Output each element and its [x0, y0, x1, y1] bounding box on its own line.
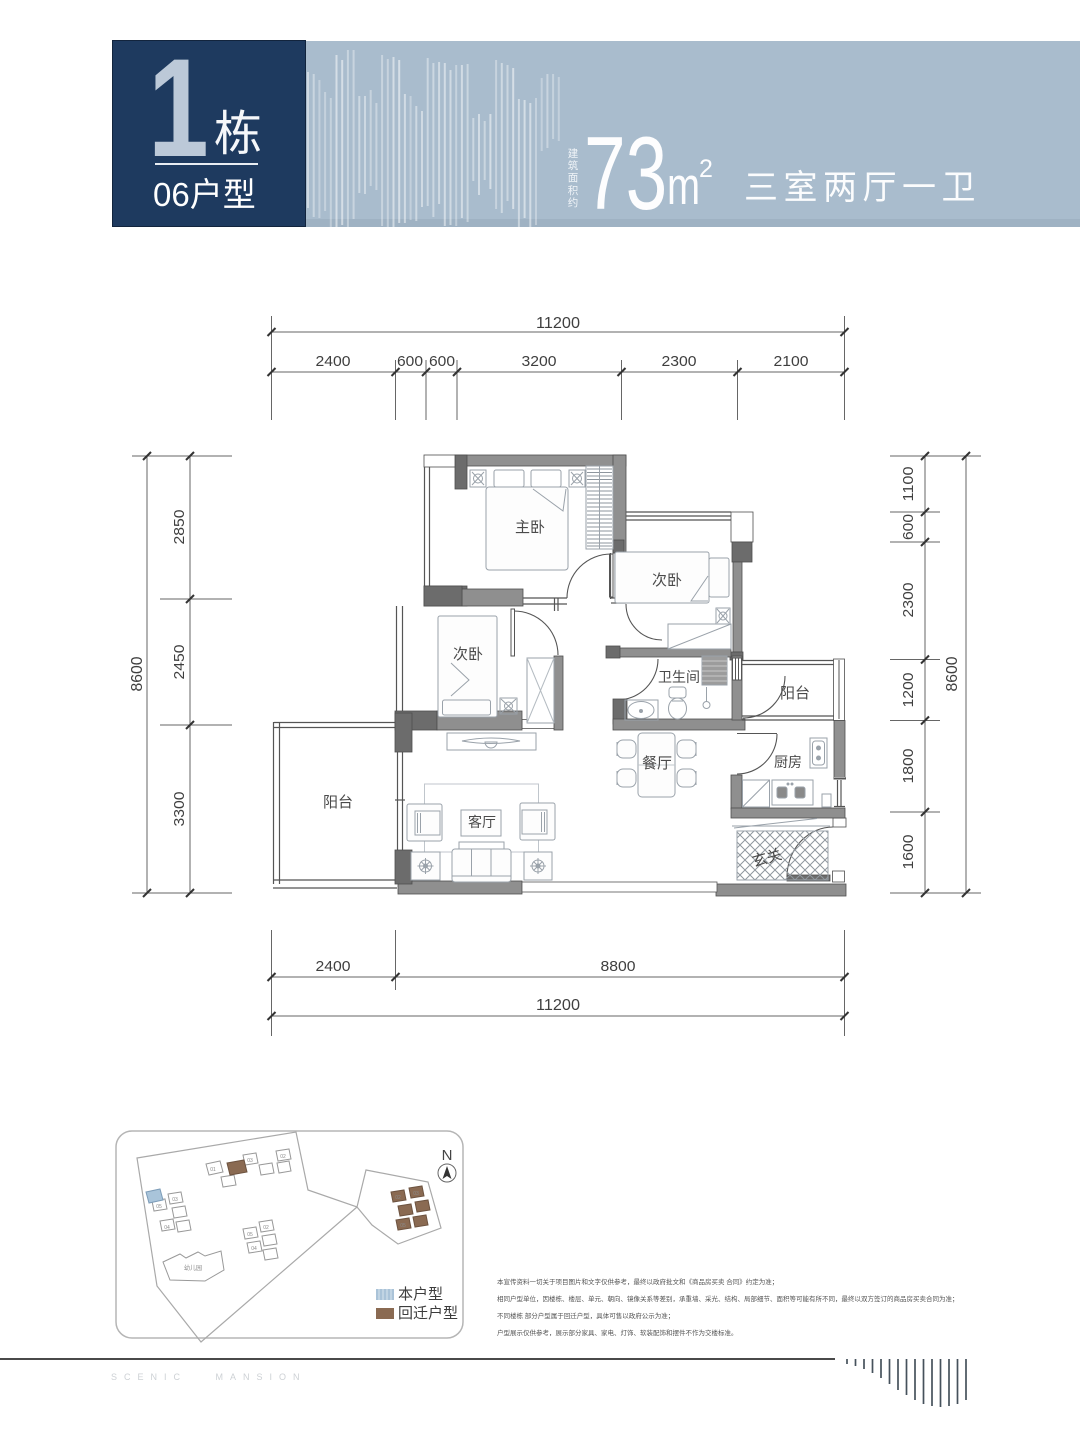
svg-text:02: 02 [395, 1195, 401, 1201]
svg-text:3200: 3200 [522, 353, 557, 370]
svg-text:05: 05 [156, 1204, 162, 1210]
svg-text:02: 02 [263, 1225, 269, 1231]
svg-text:次卧: 次卧 [453, 646, 483, 663]
svg-text:04: 04 [164, 1225, 170, 1231]
svg-text:04: 04 [251, 1246, 257, 1252]
svg-text:阳台: 阳台 [780, 685, 810, 702]
svg-text:本户型: 本户型 [398, 1286, 443, 1303]
svg-text:客厅: 客厅 [468, 814, 496, 830]
svg-text:600: 600 [429, 353, 455, 370]
svg-text:1100: 1100 [900, 467, 917, 502]
svg-text:次卧: 次卧 [652, 572, 682, 589]
svg-text:餐厅: 餐厅 [642, 755, 672, 772]
svg-text:02: 02 [280, 1154, 286, 1160]
svg-text:2400: 2400 [316, 353, 351, 370]
svg-text:2850: 2850 [171, 510, 188, 545]
svg-text:阳台: 阳台 [323, 794, 353, 811]
svg-text:2100: 2100 [774, 353, 809, 370]
svg-text:回迁户型: 回迁户型 [398, 1305, 458, 1322]
svg-text:1800: 1800 [900, 749, 917, 784]
svg-text:卫生间: 卫生间 [658, 669, 700, 685]
svg-text:03: 03 [413, 1191, 419, 1197]
svg-text:1600: 1600 [900, 835, 917, 870]
svg-text:2300: 2300 [900, 583, 917, 618]
svg-text:3300: 3300 [171, 792, 188, 827]
svg-text:03: 03 [247, 1158, 253, 1164]
svg-text:幼儿园: 幼儿园 [184, 1264, 202, 1272]
svg-text:2400: 2400 [316, 958, 351, 975]
svg-text:05: 05 [247, 1232, 253, 1238]
svg-text:8600: 8600 [944, 656, 961, 691]
svg-text:600: 600 [900, 514, 917, 540]
svg-text:03: 03 [172, 1197, 178, 1203]
svg-text:2450: 2450 [171, 645, 188, 680]
svg-text:11200: 11200 [536, 315, 580, 332]
svg-text:05: 05 [400, 1223, 406, 1229]
svg-text:厨房: 厨房 [774, 754, 802, 770]
svg-text:01: 01 [210, 1167, 216, 1173]
svg-text:8600: 8600 [129, 656, 146, 691]
svg-text:1200: 1200 [900, 673, 917, 708]
svg-text:2300: 2300 [662, 353, 697, 370]
svg-text:600: 600 [397, 353, 423, 370]
svg-text:N: N [442, 1147, 453, 1164]
svg-text:主卧: 主卧 [515, 519, 545, 536]
svg-text:8800: 8800 [601, 958, 636, 975]
svg-text:11200: 11200 [536, 997, 580, 1014]
